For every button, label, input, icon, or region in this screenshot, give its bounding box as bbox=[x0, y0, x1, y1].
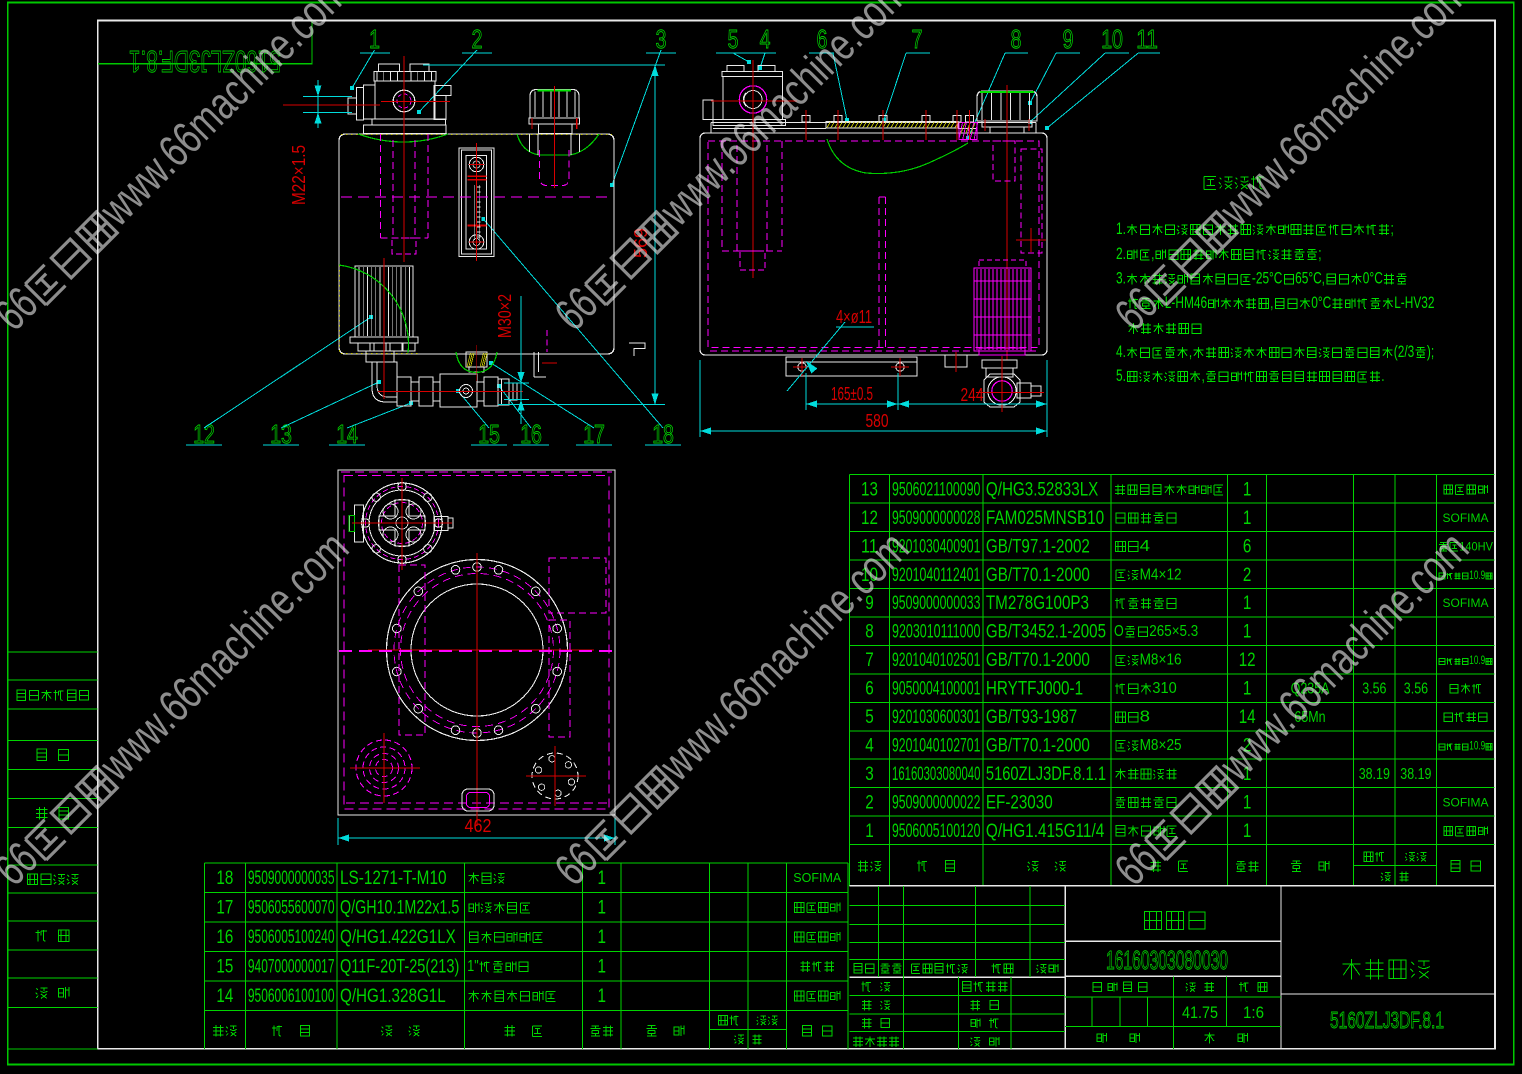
svg-text:65°C,: 65°C, bbox=[1295, 269, 1325, 288]
svg-text:Q/GH10.1M22x1.5: Q/GH10.1M22x1.5 bbox=[340, 897, 459, 919]
svg-text:SOFIMA: SOFIMA bbox=[793, 871, 842, 885]
svg-text:LS-1271-T-M10: LS-1271-T-M10 bbox=[340, 867, 447, 889]
svg-text:,: , bbox=[1189, 342, 1192, 361]
svg-text:4: 4 bbox=[1140, 538, 1151, 555]
svg-text:1: 1 bbox=[1243, 621, 1252, 643]
svg-text:1:6: 1:6 bbox=[1243, 1004, 1264, 1022]
svg-text:GB/T70.1-2000: GB/T70.1-2000 bbox=[986, 564, 1090, 586]
svg-text:1: 1 bbox=[598, 926, 607, 948]
svg-text:1: 1 bbox=[1243, 478, 1252, 500]
svg-text:1: 1 bbox=[598, 956, 607, 978]
svg-text:5: 5 bbox=[865, 706, 874, 728]
svg-text:0°C: 0°C bbox=[1311, 293, 1331, 312]
svg-text:9506021100090: 9506021100090 bbox=[892, 478, 980, 500]
svg-text:M22×1.5: M22×1.5 bbox=[289, 145, 309, 205]
svg-text:580: 580 bbox=[866, 411, 889, 431]
svg-text:-25°C: -25°C bbox=[1252, 269, 1283, 288]
svg-text:165±0.5: 165±0.5 bbox=[831, 384, 873, 404]
svg-text:Q/HG1.415G11/4: Q/HG1.415G11/4 bbox=[986, 820, 1105, 842]
svg-text:HRYTFJ000-1: HRYTFJ000-1 bbox=[986, 678, 1083, 700]
svg-text:GB/T93-1987: GB/T93-1987 bbox=[986, 706, 1077, 728]
svg-text:M8×16: M8×16 bbox=[1140, 652, 1182, 669]
svg-text:12: 12 bbox=[1239, 649, 1256, 671]
svg-text:17: 17 bbox=[216, 897, 233, 919]
svg-text:5160ZLJ3DF.8.1.1: 5160ZLJ3DF.8.1.1 bbox=[986, 763, 1106, 785]
svg-text:15: 15 bbox=[216, 956, 233, 978]
svg-text:EF-23030: EF-23030 bbox=[986, 791, 1053, 813]
svg-text:9509000000035: 9509000000035 bbox=[248, 867, 335, 889]
svg-text:5.: 5. bbox=[1116, 366, 1126, 385]
svg-text:9407000000017: 9407000000017 bbox=[248, 956, 335, 978]
svg-text:10: 10 bbox=[1101, 24, 1123, 54]
svg-text:M30×2: M30×2 bbox=[495, 294, 515, 338]
svg-text:8: 8 bbox=[1140, 709, 1151, 726]
svg-text:10.9: 10.9 bbox=[1469, 568, 1485, 582]
svg-text:244: 244 bbox=[961, 385, 984, 405]
svg-text:M8×25: M8×25 bbox=[1140, 737, 1182, 754]
svg-text:265×5.3: 265×5.3 bbox=[1149, 623, 1198, 640]
svg-text:9050004100001: 9050004100001 bbox=[892, 678, 980, 700]
svg-text:8: 8 bbox=[1011, 24, 1022, 54]
svg-text:(2/3: (2/3 bbox=[1394, 342, 1415, 361]
svg-text:GB/T70.1-2000: GB/T70.1-2000 bbox=[986, 735, 1090, 757]
svg-text:8: 8 bbox=[865, 621, 874, 643]
svg-text:1: 1 bbox=[1243, 507, 1252, 529]
svg-text:3: 3 bbox=[656, 24, 667, 54]
svg-text:1: 1 bbox=[369, 24, 380, 54]
svg-text:2: 2 bbox=[472, 24, 483, 54]
svg-text:11: 11 bbox=[1136, 24, 1158, 54]
svg-text:310: 310 bbox=[1152, 680, 1176, 697]
svg-text:7: 7 bbox=[912, 24, 923, 54]
svg-text:16160303080040: 16160303080040 bbox=[892, 763, 980, 785]
svg-text:1: 1 bbox=[865, 820, 874, 842]
svg-text:O: O bbox=[1114, 623, 1124, 640]
svg-text:SOFIMA: SOFIMA bbox=[1443, 596, 1489, 610]
svg-text:,: , bbox=[1202, 366, 1205, 385]
svg-text:9201040102501: 9201040102501 bbox=[892, 649, 980, 671]
svg-text:1.: 1. bbox=[1116, 219, 1126, 238]
svg-text:4.: 4. bbox=[1116, 342, 1126, 361]
svg-text:4×ø11: 4×ø11 bbox=[836, 307, 872, 327]
svg-text:9509000000033: 9509000000033 bbox=[892, 592, 980, 614]
svg-text:,: , bbox=[1151, 244, 1154, 263]
svg-text:1: 1 bbox=[1243, 791, 1252, 813]
svg-text:L-HM46: L-HM46 bbox=[1165, 293, 1207, 312]
svg-text:GB/T70.1-2000: GB/T70.1-2000 bbox=[986, 649, 1090, 671]
svg-text:,: , bbox=[1270, 293, 1273, 312]
svg-text:9506006100100: 9506006100100 bbox=[248, 985, 335, 1007]
svg-text:9509000000022: 9509000000022 bbox=[892, 791, 980, 813]
svg-text:2.: 2. bbox=[1116, 244, 1126, 263]
svg-text:3.56: 3.56 bbox=[1404, 681, 1428, 698]
svg-text:TM278G100P3: TM278G100P3 bbox=[986, 592, 1089, 614]
svg-text:);: ); bbox=[1427, 342, 1434, 361]
svg-text:4: 4 bbox=[865, 735, 874, 757]
svg-text:SOFIMA: SOFIMA bbox=[1443, 511, 1489, 525]
svg-text:;: ; bbox=[1318, 244, 1321, 263]
svg-text:1: 1 bbox=[598, 897, 607, 919]
svg-text:38.19: 38.19 bbox=[1359, 766, 1390, 783]
svg-text:SOFIMA: SOFIMA bbox=[1443, 795, 1489, 809]
svg-text:Q/HG3.52833LX: Q/HG3.52833LX bbox=[986, 478, 1098, 500]
svg-text:5: 5 bbox=[728, 24, 739, 54]
svg-text:12: 12 bbox=[861, 507, 878, 529]
svg-text:38.19: 38.19 bbox=[1400, 766, 1431, 783]
svg-text:GB/T3452.1-2005: GB/T3452.1-2005 bbox=[986, 621, 1106, 643]
svg-text:9506005100120: 9506005100120 bbox=[892, 820, 980, 842]
svg-text:1: 1 bbox=[598, 985, 607, 1007]
svg-text:16160303080030: 16160303080030 bbox=[1106, 945, 1228, 975]
svg-text:FAM025MNSB10: FAM025MNSB10 bbox=[986, 507, 1104, 529]
svg-text:18: 18 bbox=[216, 867, 233, 889]
svg-text:41.75: 41.75 bbox=[1182, 1004, 1218, 1022]
svg-text:13: 13 bbox=[861, 478, 878, 500]
svg-text:1: 1 bbox=[1243, 678, 1252, 700]
svg-text:L-HV32: L-HV32 bbox=[1394, 293, 1434, 312]
svg-text:9506055600070: 9506055600070 bbox=[248, 897, 335, 919]
svg-text:Q11F-20T-25(213): Q11F-20T-25(213) bbox=[340, 956, 459, 978]
svg-text:.: . bbox=[1381, 366, 1384, 385]
svg-text:;: ; bbox=[1391, 219, 1394, 238]
svg-text:Q/HG1.422G1LX: Q/HG1.422G1LX bbox=[340, 926, 456, 948]
svg-text:1: 1 bbox=[1243, 820, 1252, 842]
svg-text:14: 14 bbox=[216, 985, 233, 1007]
svg-text:3: 3 bbox=[865, 763, 874, 785]
svg-text:2: 2 bbox=[1243, 564, 1252, 586]
svg-text:9506005100240: 9506005100240 bbox=[248, 926, 335, 948]
svg-text:0°C: 0°C bbox=[1363, 269, 1383, 288]
svg-text:9201040102701: 9201040102701 bbox=[892, 735, 980, 757]
svg-text:Q/HG1.328G1L: Q/HG1.328G1L bbox=[340, 985, 446, 1007]
svg-text:9203010111000: 9203010111000 bbox=[892, 621, 980, 643]
svg-text:10.9: 10.9 bbox=[1469, 653, 1485, 667]
svg-text:462: 462 bbox=[465, 816, 492, 836]
svg-text:7: 7 bbox=[865, 649, 874, 671]
svg-text:2: 2 bbox=[865, 791, 874, 813]
svg-text:3.56: 3.56 bbox=[1362, 681, 1386, 698]
svg-text:16: 16 bbox=[216, 926, 233, 948]
svg-text:4: 4 bbox=[760, 24, 771, 54]
svg-text:10.9: 10.9 bbox=[1469, 739, 1485, 753]
svg-text:M4×12: M4×12 bbox=[1140, 566, 1182, 583]
svg-text:6: 6 bbox=[1243, 535, 1252, 557]
svg-text:5160ZLJ3DF.8.1: 5160ZLJ3DF.8.1 bbox=[1330, 1007, 1444, 1033]
svg-text:9201030600301: 9201030600301 bbox=[892, 706, 980, 728]
svg-text:9509000000028: 9509000000028 bbox=[892, 507, 980, 529]
svg-text:1: 1 bbox=[1243, 592, 1252, 614]
svg-text:1": 1" bbox=[467, 958, 478, 975]
svg-text:9: 9 bbox=[1063, 24, 1074, 54]
svg-text:6: 6 bbox=[865, 678, 874, 700]
svg-text:GB/T97.1-2002: GB/T97.1-2002 bbox=[986, 535, 1090, 557]
